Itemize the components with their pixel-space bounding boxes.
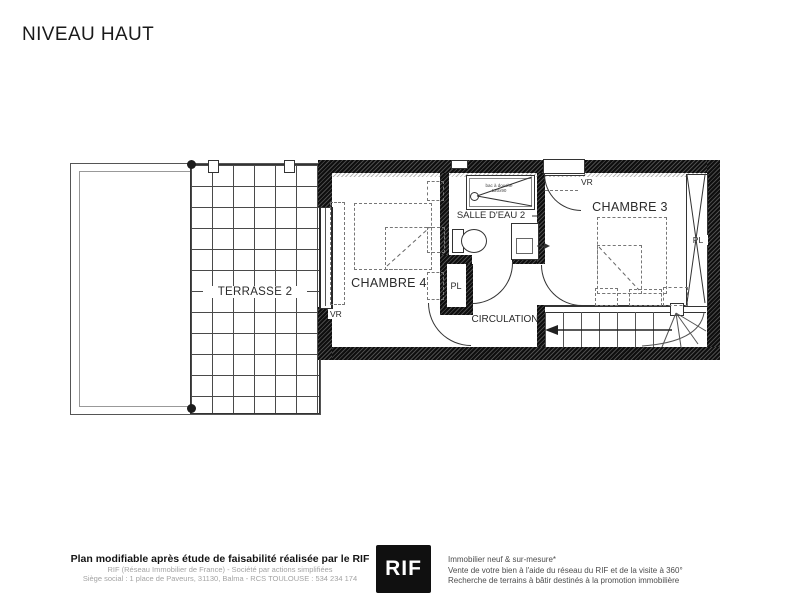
footer-services-block: Immobilier neuf & sur-mesure* Vente de v… [448, 555, 683, 587]
window-swing-chambre3 [544, 174, 581, 211]
room-label-salledeau: SALLE D'EAU 2 [450, 210, 532, 221]
furniture-box [629, 289, 662, 306]
wall-right [707, 160, 720, 360]
terrace-corner-post [187, 404, 196, 413]
room-label-terrasse: TERRASSE 2 [203, 286, 307, 298]
furniture-box [595, 288, 618, 306]
furniture-box [663, 287, 688, 306]
door-swing-chambre3 [541, 265, 582, 306]
room-label-circulation: CIRCULATION [463, 314, 547, 325]
shutter-label-vr-chambre4: VR [328, 309, 344, 319]
room-label-chambre3: CHAMBRE 3 [580, 200, 680, 214]
footer-service-line1: Immobilier neuf & sur-mesure* [448, 555, 683, 566]
closet-label-pl2: PL [688, 235, 708, 245]
water-heater-inner [516, 238, 533, 254]
room-label-chambre4: CHAMBRE 4 [334, 276, 444, 290]
terrace-inner-line [79, 171, 191, 407]
wall-left-upper [318, 160, 332, 207]
page-title: NIVEAU HAUT [22, 24, 154, 46]
wall-chambre3-lower [537, 305, 545, 347]
footer-legal-block: Plan modifiable après étude de faisabili… [60, 553, 380, 583]
shutter-label-vr-chambre3: VR [581, 177, 593, 187]
toilet-bowl [461, 229, 487, 253]
furniture-box [427, 227, 445, 253]
wall-bottom [318, 347, 720, 360]
bed-chambre3-fold [597, 245, 642, 294]
shower-drain [470, 192, 479, 201]
wall-top [318, 160, 720, 173]
terrace-post [284, 160, 295, 173]
door-swing-salledeau [472, 263, 513, 304]
bed-chambre4-fold [385, 227, 432, 270]
shower-size-note: bac à douche 120x90 [468, 183, 530, 193]
terrace-corner-post [187, 160, 196, 169]
floor-plan-page: NIVEAU HAUT TERRASSE 2 PL PL bac à douch… [0, 0, 800, 600]
footer-service-line3: Recherche de terrains à bâtir destinés à… [448, 576, 683, 587]
staircase-treads [545, 312, 671, 347]
wall-salledeau-bottom-left [440, 255, 472, 264]
footer-address-line: Siège social : 1 place de Paveurs, 31130… [60, 574, 380, 583]
closet-label-pl: PL [446, 281, 466, 291]
shower-note-line2: 120x90 [492, 188, 507, 193]
window-glazing-line [325, 208, 326, 306]
terrace-post [208, 160, 219, 173]
footer-service-line2: Vente de votre bien à l'aide du réseau d… [448, 566, 683, 577]
furniture-box [427, 181, 444, 201]
vent-top-wall [451, 160, 468, 169]
footer-disclaimer: Plan modifiable après étude de faisabili… [60, 553, 380, 565]
rif-logo: RIF [376, 545, 431, 593]
footer-company-line: RIF (Réseau Immobilier de France) - Soci… [60, 565, 380, 574]
